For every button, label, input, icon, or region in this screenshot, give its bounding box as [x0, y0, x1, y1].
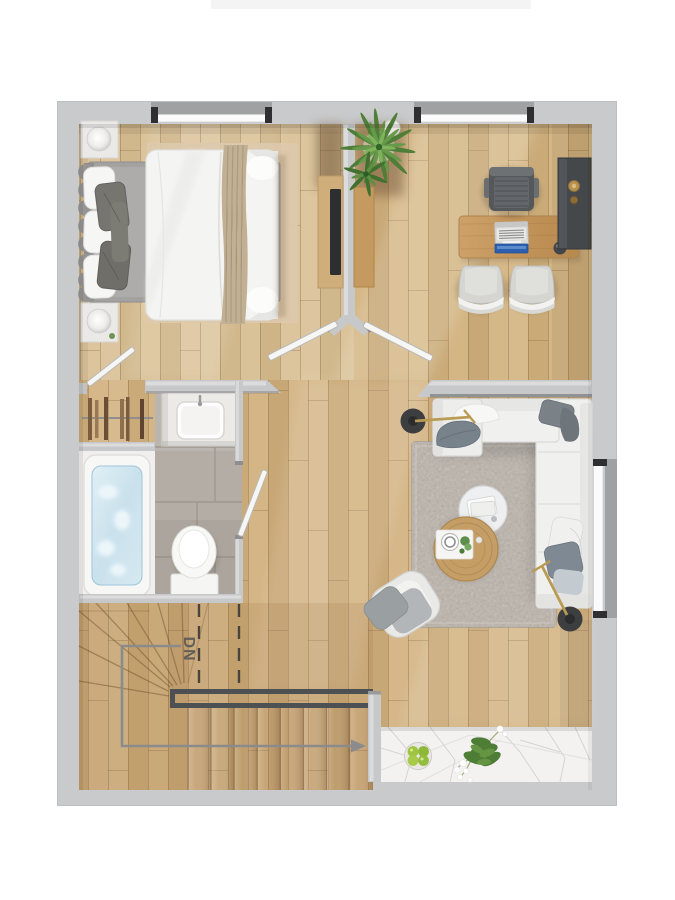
svg-text:DN: DN	[180, 636, 197, 661]
